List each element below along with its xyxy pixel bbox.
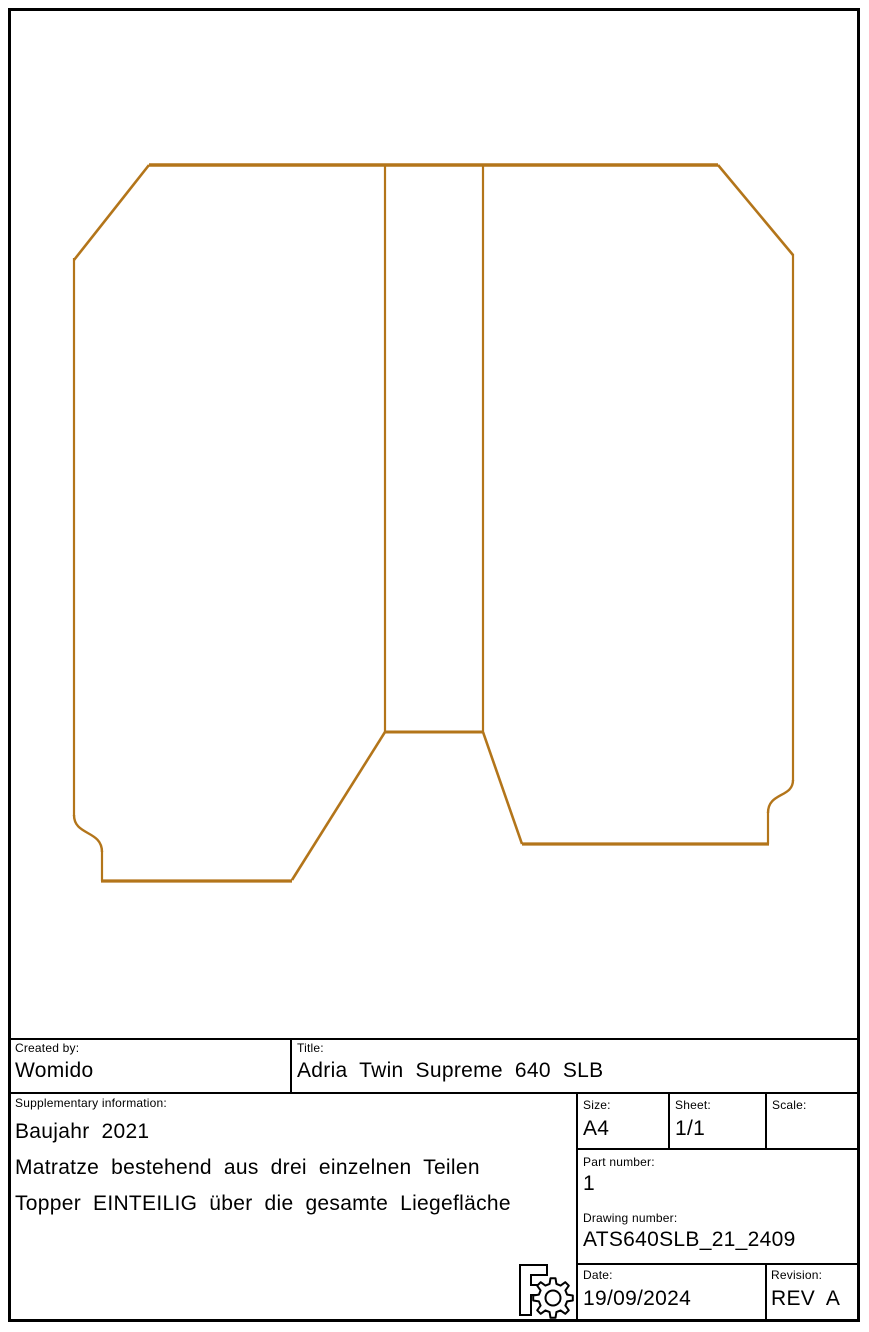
supplementary-label: Supplementary information:	[15, 1096, 167, 1110]
date-row-top-line	[576, 1263, 860, 1265]
part-number-label: Part number:	[583, 1155, 655, 1169]
createdby-title-divider	[290, 1038, 292, 1094]
title-label: Title:	[297, 1041, 324, 1055]
drawing-number-value: ATS640SLB_21_2409	[583, 1228, 796, 1252]
size-row-bottom-line	[576, 1148, 860, 1150]
size-sheet-divider	[668, 1092, 670, 1150]
left-diagonal	[292, 732, 385, 880]
size-value: A4	[583, 1117, 609, 1141]
sheet-scale-divider	[765, 1092, 767, 1150]
freecad-logo-gear-hole	[546, 1291, 561, 1306]
titleblock-row-divider	[8, 1092, 860, 1094]
part-number-value: 1	[583, 1172, 595, 1196]
supplementary-line-1: Baujahr 2021	[15, 1114, 511, 1150]
mattress-outline-drawing	[0, 0, 869, 1040]
sheet-value: 1/1	[675, 1117, 705, 1141]
title-value: Adria Twin Supreme 640 SLB	[297, 1059, 603, 1083]
created-by-value: Womido	[15, 1059, 93, 1083]
supplementary-line-2: Matratze bestehend aus drei einzelnen Te…	[15, 1150, 511, 1186]
drawing-sheet: Created by: Womido Title: Adria Twin Sup…	[0, 0, 869, 1332]
size-label: Size:	[583, 1098, 611, 1112]
revision-label: Revision:	[771, 1268, 822, 1282]
right-diagonal	[483, 732, 522, 844]
revision-value: REV A	[771, 1287, 840, 1311]
created-by-label: Created by:	[15, 1041, 79, 1055]
left-notch-curve	[74, 815, 102, 852]
right-chamfer	[718, 165, 793, 255]
titleblock-top-line	[8, 1038, 860, 1040]
freecad-logo-icon	[513, 1258, 579, 1322]
date-revision-divider	[765, 1263, 767, 1322]
date-value: 19/09/2024	[583, 1287, 691, 1311]
supplementary-lines: Baujahr 2021 Matratze bestehend aus drei…	[15, 1114, 511, 1222]
date-label: Date:	[583, 1268, 613, 1282]
right-notch-curve	[768, 780, 793, 813]
sheet-label: Sheet:	[675, 1098, 711, 1112]
scale-label: Scale:	[772, 1098, 807, 1112]
supplementary-line-3: Topper EINTEILIG über die gesamte Liegef…	[15, 1186, 511, 1222]
drawing-number-label: Drawing number:	[583, 1211, 677, 1225]
left-chamfer	[74, 165, 149, 260]
